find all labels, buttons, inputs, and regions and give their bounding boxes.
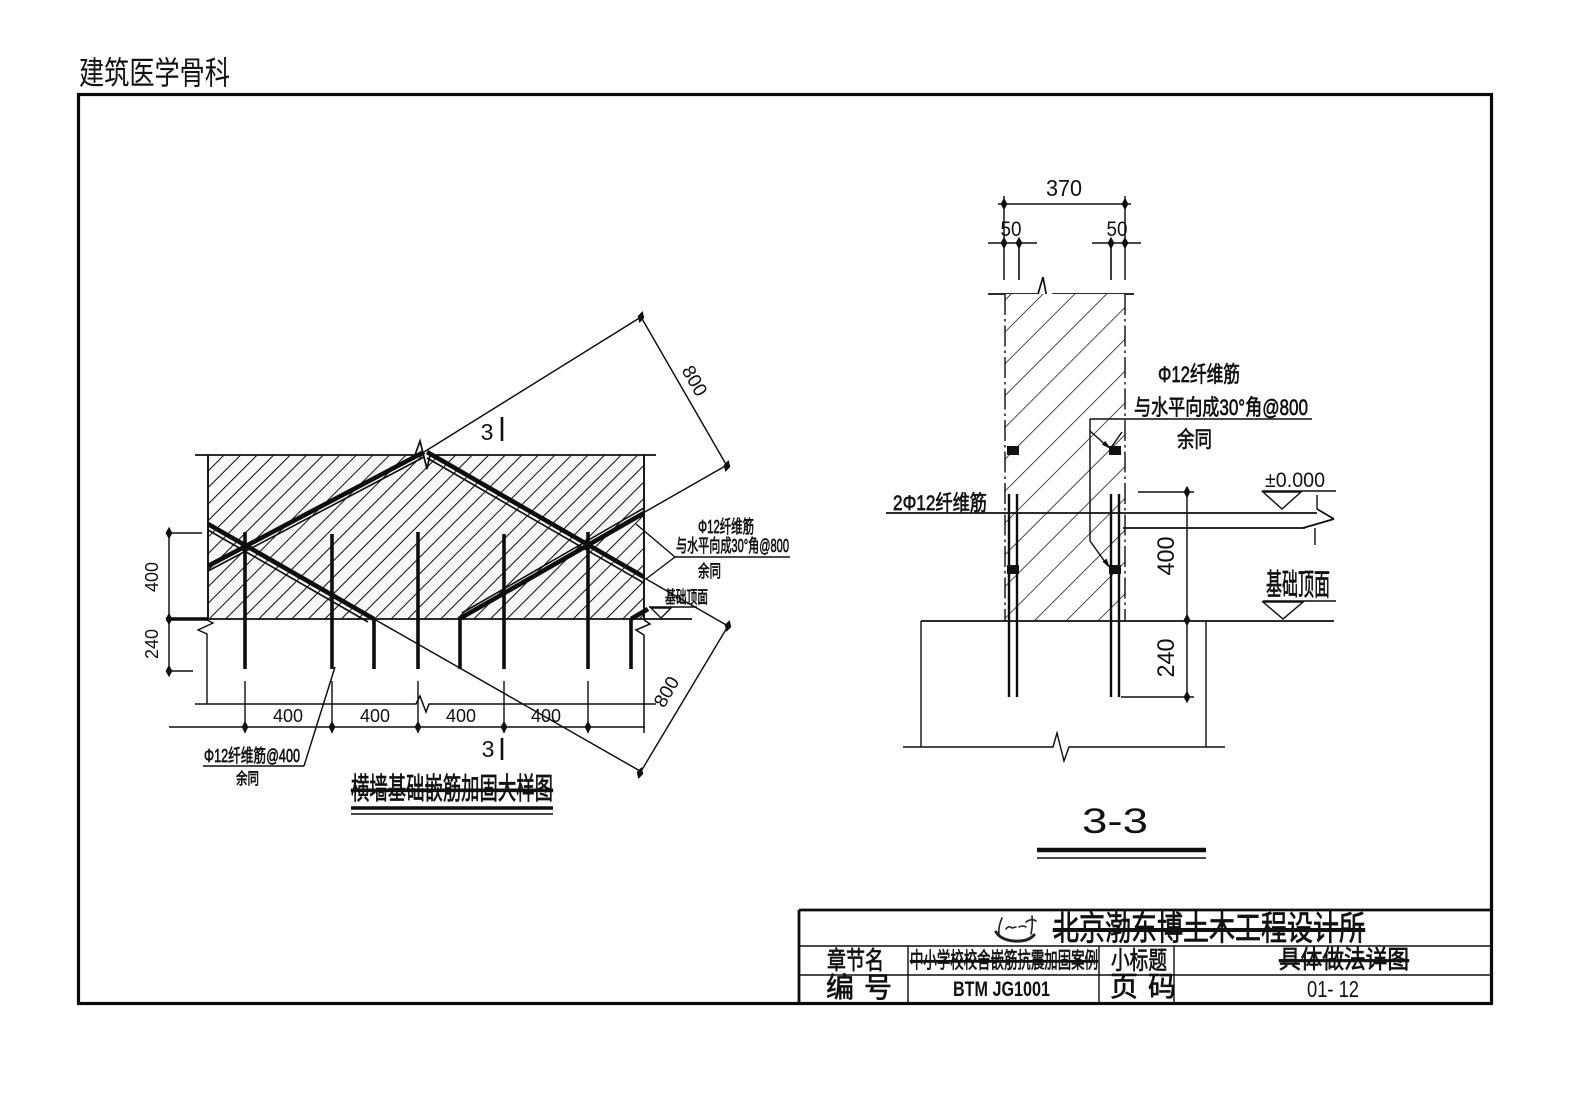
svg-text:3: 3 — [481, 419, 494, 445]
svg-text:中小学校校舍嵌筋抗震加固案例: 中小学校校舍嵌筋抗震加固案例 — [910, 948, 1098, 973]
svg-text:400: 400 — [142, 562, 162, 592]
svg-text:基础顶面: 基础顶面 — [1266, 569, 1330, 602]
svg-text:建筑医学骨科: 建筑医学骨科 — [79, 55, 230, 91]
svg-text:页: 页 — [1110, 971, 1138, 1002]
svg-text:横墙基础嵌筋加固大样图: 横墙基础嵌筋加固大样图 — [351, 773, 553, 806]
svg-text:400: 400 — [446, 706, 476, 726]
svg-text:码: 码 — [1148, 971, 1176, 1002]
svg-text:号: 号 — [864, 972, 892, 1003]
svg-text:余同: 余同 — [698, 562, 721, 581]
svg-text:370: 370 — [1046, 175, 1082, 201]
svg-text:400: 400 — [360, 706, 390, 726]
svg-text:Φ12纤维筋: Φ12纤维筋 — [698, 517, 754, 537]
svg-text:50: 50 — [1107, 218, 1128, 241]
svg-text:余同: 余同 — [1177, 427, 1212, 452]
svg-text:240: 240 — [142, 629, 162, 659]
svg-text:Φ12纤维筋: Φ12纤维筋 — [1158, 362, 1240, 387]
svg-text:与水平向成30°角@800: 与水平向成30°角@800 — [1134, 395, 1308, 420]
svg-text:3-3: 3-3 — [1082, 802, 1148, 841]
svg-text:3: 3 — [482, 736, 495, 762]
svg-text:01- 12: 01- 12 — [1307, 976, 1359, 1002]
svg-text:400: 400 — [1153, 537, 1180, 576]
svg-text:余同: 余同 — [236, 769, 259, 788]
svg-text:基础顶面: 基础顶面 — [665, 588, 708, 607]
svg-text:400: 400 — [531, 706, 561, 726]
svg-text:具体做法详图: 具体做法详图 — [1279, 946, 1409, 974]
svg-text:章节名: 章节名 — [827, 947, 884, 975]
svg-text:BTM JG1001: BTM JG1001 — [953, 978, 1050, 1001]
svg-text:±0.000: ±0.000 — [1265, 469, 1325, 492]
svg-text:2Φ12纤维筋: 2Φ12纤维筋 — [893, 492, 987, 515]
svg-text:400: 400 — [273, 706, 303, 726]
svg-text:与水平向成30°角@800: 与水平向成30°角@800 — [676, 536, 789, 556]
svg-text:北京渤东博土木工程设计所: 北京渤东博土木工程设计所 — [1053, 910, 1365, 948]
svg-text:Φ12纤维筋@400: Φ12纤维筋@400 — [204, 746, 300, 766]
svg-text:240: 240 — [1153, 639, 1180, 678]
svg-text:编: 编 — [826, 972, 854, 1003]
